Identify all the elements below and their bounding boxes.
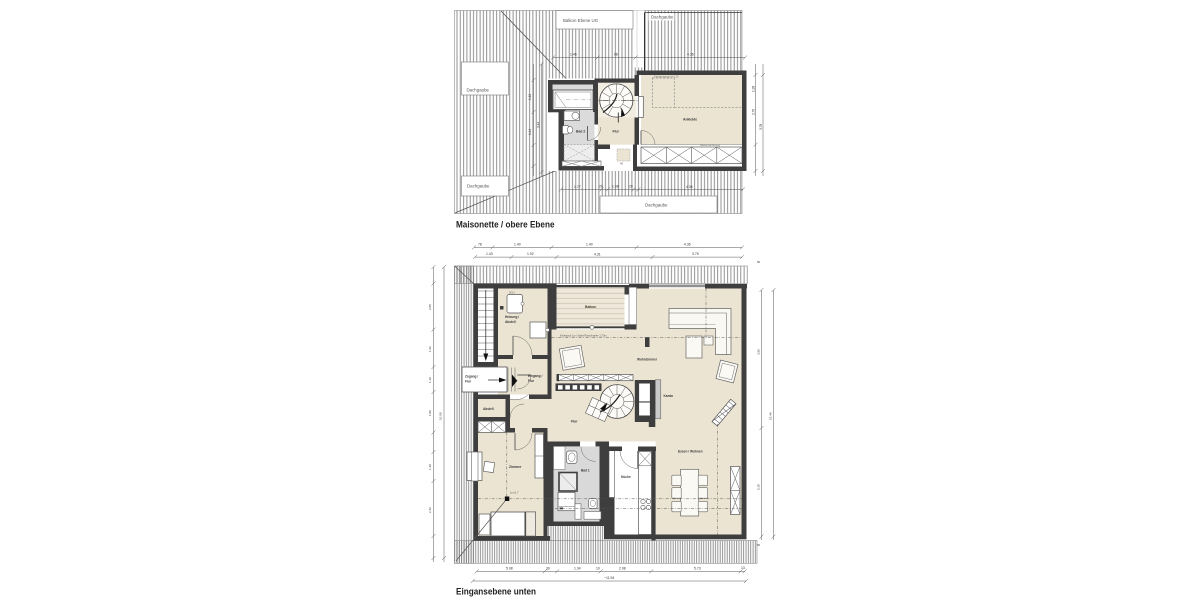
svg-text:Kleiderstange h=1.25: Kleiderstange h=1.25 (654, 75, 679, 79)
svg-text:Flur: Flur (528, 379, 535, 383)
svg-text:13: 13 (741, 566, 745, 570)
svg-text:Wohnzimmer: Wohnzimmer (637, 358, 658, 362)
svg-text:50: 50 (757, 543, 761, 547)
svg-text:Zimmer: Zimmer (509, 465, 522, 469)
svg-text:10.48: 10.48 (769, 412, 773, 420)
svg-text:Ankleide: Ankleide (683, 118, 697, 122)
svg-text:4.31: 4.31 (594, 253, 601, 257)
svg-text:3.75: 3.75 (692, 252, 699, 256)
svg-text:Essen / Wohnen: Essen / Wohnen (678, 450, 703, 454)
svg-text:10: 10 (596, 566, 600, 570)
svg-text:4.36: 4.36 (684, 242, 691, 246)
svg-text:2.70: 2.70 (752, 109, 756, 115)
svg-text:1.92: 1.92 (527, 252, 534, 256)
svg-text:Dachgaube: Dachgaube (467, 184, 490, 189)
svg-text:Dachgaube: Dachgaube (645, 203, 668, 208)
svg-text:~11.94: ~11.94 (604, 576, 614, 580)
svg-text:1.77: 1.77 (574, 185, 581, 189)
svg-text:1.10: 1.10 (428, 377, 432, 383)
svg-text:2.05: 2.05 (428, 304, 432, 310)
svg-text:50: 50 (757, 260, 761, 264)
svg-text:1.40: 1.40 (514, 242, 521, 246)
svg-text:3.44: 3.44 (537, 122, 541, 128)
svg-text:2.08: 2.08 (619, 566, 626, 570)
svg-text:Bad 2: Bad 2 (576, 130, 585, 134)
svg-text:Absturzsicherung: Absturzsicherung (700, 143, 721, 147)
svg-text:3.80: 3.80 (757, 349, 761, 355)
svg-text:Eingansebene unten: Eingansebene unten (456, 586, 536, 597)
svg-text:Bad 1: Bad 1 (581, 469, 590, 473)
svg-text:20: 20 (629, 184, 633, 188)
svg-text:20: 20 (599, 184, 603, 188)
svg-text:Flur: Flur (613, 130, 620, 134)
svg-text:98: 98 (614, 53, 618, 57)
svg-text:1.44: 1.44 (528, 129, 532, 135)
svg-text:78: 78 (478, 242, 482, 246)
svg-text:1m/1.7: 1m/1.7 (510, 491, 519, 495)
svg-text:Abstell: Abstell (483, 407, 494, 411)
svg-text:4.36: 4.36 (686, 185, 693, 189)
svg-text:Kamin: Kamin (664, 394, 674, 398)
svg-text:1.28: 1.28 (428, 464, 432, 470)
svg-text:1.80: 1.80 (428, 410, 432, 416)
svg-text:Flur: Flur (465, 380, 472, 384)
svg-text:3.78: 3.78 (759, 124, 763, 130)
svg-text:1.43: 1.43 (486, 252, 493, 256)
svg-text:Heizung /: Heizung / (505, 315, 519, 319)
svg-text:1.40: 1.40 (586, 242, 593, 246)
svg-text:30: 30 (546, 566, 550, 570)
svg-text:Abstell: Abstell (505, 320, 516, 324)
svg-text:5.38: 5.38 (757, 484, 761, 490)
svg-text:Balkon Ebene UG: Balkon Ebene UG (563, 18, 599, 23)
svg-text:40: 40 (620, 162, 624, 166)
svg-text:Dachgaube: Dachgaube (651, 15, 674, 20)
svg-text:Balkon: Balkon (585, 305, 596, 309)
svg-text:1.12: 1.12 (528, 94, 532, 100)
svg-text:10.08: 10.08 (439, 412, 443, 420)
svg-text:1.62: 1.62 (428, 346, 432, 352)
svg-text:300 l: 300 l (509, 291, 515, 295)
svg-text:1.98: 1.98 (752, 86, 756, 92)
svg-text:4.36: 4.36 (687, 53, 694, 57)
svg-text:1.34: 1.34 (574, 566, 581, 570)
svg-text:Flur: Flur (571, 420, 578, 424)
svg-text:2.42: 2.42 (428, 507, 432, 513)
svg-text:Kniestock 1m / lichte Raumhoeh: Kniestock 1m / lichte Raumhoehe 1.70m (560, 333, 607, 337)
svg-text:5.08: 5.08 (506, 566, 513, 570)
svg-text:1.46: 1.46 (570, 53, 577, 57)
svg-text:Eingang /: Eingang / (528, 374, 542, 378)
svg-text:Küche: Küche (621, 475, 631, 479)
svg-text:5.73: 5.73 (694, 566, 701, 570)
svg-text:Zugang /: Zugang / (465, 375, 478, 379)
svg-text:Maisonette / obere Ebene: Maisonette / obere Ebene (456, 219, 555, 230)
svg-text:Dachgaube: Dachgaube (467, 88, 490, 93)
svg-text:1.08: 1.08 (612, 184, 619, 188)
